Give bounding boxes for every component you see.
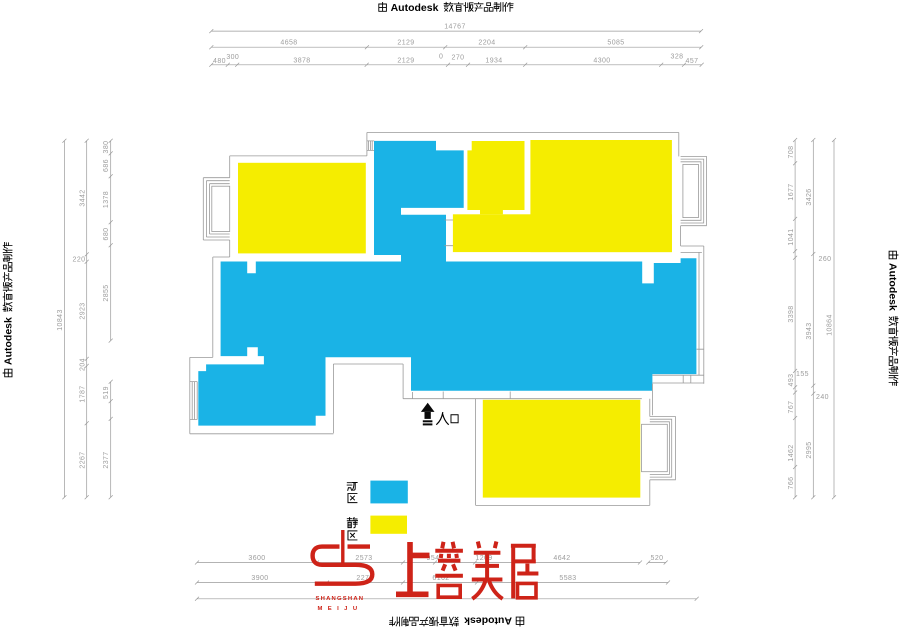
svg-text:2267: 2267 bbox=[79, 451, 86, 468]
svg-text:2129: 2129 bbox=[397, 58, 414, 65]
svg-text:686: 686 bbox=[103, 159, 110, 172]
svg-text:1677: 1677 bbox=[788, 183, 795, 200]
svg-text:767: 767 bbox=[788, 401, 795, 414]
svg-text:457: 457 bbox=[686, 58, 699, 65]
svg-text:4642: 4642 bbox=[553, 555, 570, 562]
svg-text:3878: 3878 bbox=[293, 58, 310, 65]
svg-text:2923: 2923 bbox=[79, 302, 86, 319]
svg-text:493: 493 bbox=[788, 374, 795, 387]
svg-text:480: 480 bbox=[213, 58, 226, 65]
svg-text:5583: 5583 bbox=[559, 575, 576, 582]
svg-text:14767: 14767 bbox=[444, 24, 465, 31]
svg-text:155: 155 bbox=[796, 371, 809, 378]
svg-text:2995: 2995 bbox=[806, 441, 813, 458]
svg-text:3943: 3943 bbox=[806, 322, 813, 339]
svg-text:3600: 3600 bbox=[248, 555, 265, 562]
svg-text:1378: 1378 bbox=[103, 191, 110, 208]
svg-text:2129: 2129 bbox=[397, 40, 414, 47]
svg-text:680: 680 bbox=[103, 228, 110, 241]
svg-text:1462: 1462 bbox=[788, 444, 795, 461]
svg-text:240: 240 bbox=[816, 394, 829, 401]
svg-text:270: 270 bbox=[452, 55, 465, 62]
svg-text:519: 519 bbox=[103, 386, 110, 399]
svg-text:SHANGSHAN: SHANGSHAN bbox=[316, 596, 365, 602]
svg-text:3900: 3900 bbox=[251, 575, 268, 582]
svg-text:260: 260 bbox=[819, 256, 832, 263]
svg-text:4300: 4300 bbox=[593, 58, 610, 65]
svg-text:220: 220 bbox=[73, 257, 86, 264]
svg-text:204: 204 bbox=[79, 358, 86, 371]
svg-text:10843: 10843 bbox=[57, 309, 64, 330]
svg-text:0: 0 bbox=[439, 54, 443, 61]
svg-text:2377: 2377 bbox=[103, 451, 110, 468]
svg-text:300: 300 bbox=[226, 54, 239, 61]
svg-text:1209: 1209 bbox=[475, 555, 492, 562]
svg-text:380: 380 bbox=[103, 141, 110, 154]
svg-text:2855: 2855 bbox=[103, 284, 110, 301]
svg-text:1934: 1934 bbox=[485, 58, 502, 65]
svg-text:3398: 3398 bbox=[788, 305, 795, 322]
svg-text:2204: 2204 bbox=[478, 40, 495, 47]
svg-text:766: 766 bbox=[788, 477, 795, 490]
svg-text:520: 520 bbox=[651, 555, 664, 562]
svg-text:5085: 5085 bbox=[607, 40, 624, 47]
svg-text:2573: 2573 bbox=[355, 555, 372, 562]
svg-text:1041: 1041 bbox=[788, 228, 795, 245]
svg-text:3442: 3442 bbox=[79, 189, 86, 206]
svg-text:4658: 4658 bbox=[280, 40, 297, 47]
svg-text:1787: 1787 bbox=[79, 385, 86, 402]
svg-text:708: 708 bbox=[788, 146, 795, 159]
svg-text:3426: 3426 bbox=[806, 188, 813, 205]
svg-text:MEIJU: MEIJU bbox=[318, 606, 363, 612]
svg-text:328: 328 bbox=[671, 54, 684, 61]
svg-text:10864: 10864 bbox=[827, 314, 834, 335]
